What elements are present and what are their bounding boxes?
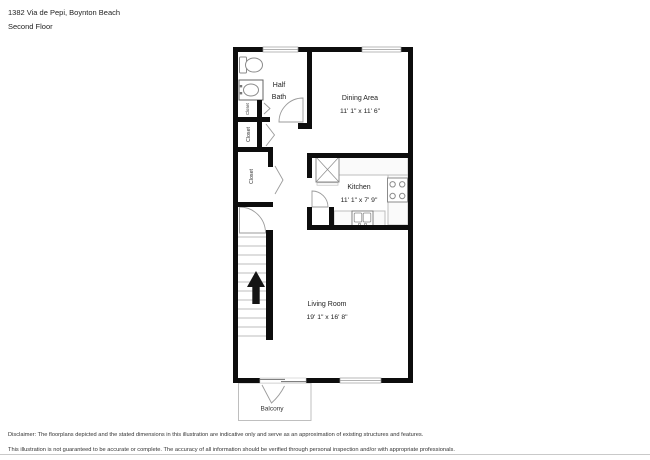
toilet-icon [240, 57, 263, 73]
window-top-left [263, 47, 298, 52]
dining-name: Dining Area [342, 95, 378, 102]
window-bottom [340, 378, 381, 383]
kitchen-sink-icon [352, 211, 373, 226]
floorplan-drawing: Half Bath Dining Area 11' 1" x 11' 6" Ki… [0, 0, 650, 460]
sliding-door [260, 378, 306, 383]
kitchen-name: Kitchen [347, 184, 370, 191]
pantry-door-icon [312, 191, 328, 207]
half-bath-name-line1: Half [273, 82, 286, 89]
living-name: Living Room [308, 301, 347, 308]
closet-label-hall-upper: Closet [246, 126, 252, 142]
stove-icon [388, 178, 408, 202]
floorplan-page: 1382 Via de Pepi, Boynton Beach Second F… [0, 0, 650, 460]
closet-label-hall-lower: Closet [249, 168, 255, 184]
bath-door-icon [279, 98, 303, 122]
room-label-dining: Dining Area 11' 1" x 11' 6" [340, 95, 381, 115]
interior-walls [238, 52, 413, 340]
room-label-kitchen: Kitchen 11' 1" x 7' 9" [341, 184, 378, 204]
window-top-right [362, 47, 401, 52]
sink-icon [239, 80, 263, 100]
refrigerator-icon [316, 157, 339, 185]
bottom-rule [0, 454, 650, 455]
living-dims: 19' 1" x 16' 8" [306, 314, 348, 321]
kitchen-dims: 11' 1" x 7' 9" [341, 197, 378, 204]
closet-label-bath: Closet [245, 102, 250, 115]
room-label-half-bath: Half Bath [272, 82, 287, 101]
room-label-balcony: Balcony [260, 406, 284, 413]
dining-dims: 11' 1" x 11' 6" [340, 108, 381, 115]
balcony-outline [239, 383, 312, 421]
disclaimer: Disclaimer: The floorplans depicted and … [8, 428, 648, 457]
stair-door-icon [240, 207, 266, 233]
disclaimer-line1: Disclaimer: The floorplans depicted and … [8, 428, 648, 443]
stairs-up-arrow-icon [247, 271, 265, 304]
half-bath-name-line2: Bath [272, 94, 287, 101]
room-label-living: Living Room 19' 1" x 16' 8" [306, 301, 348, 321]
